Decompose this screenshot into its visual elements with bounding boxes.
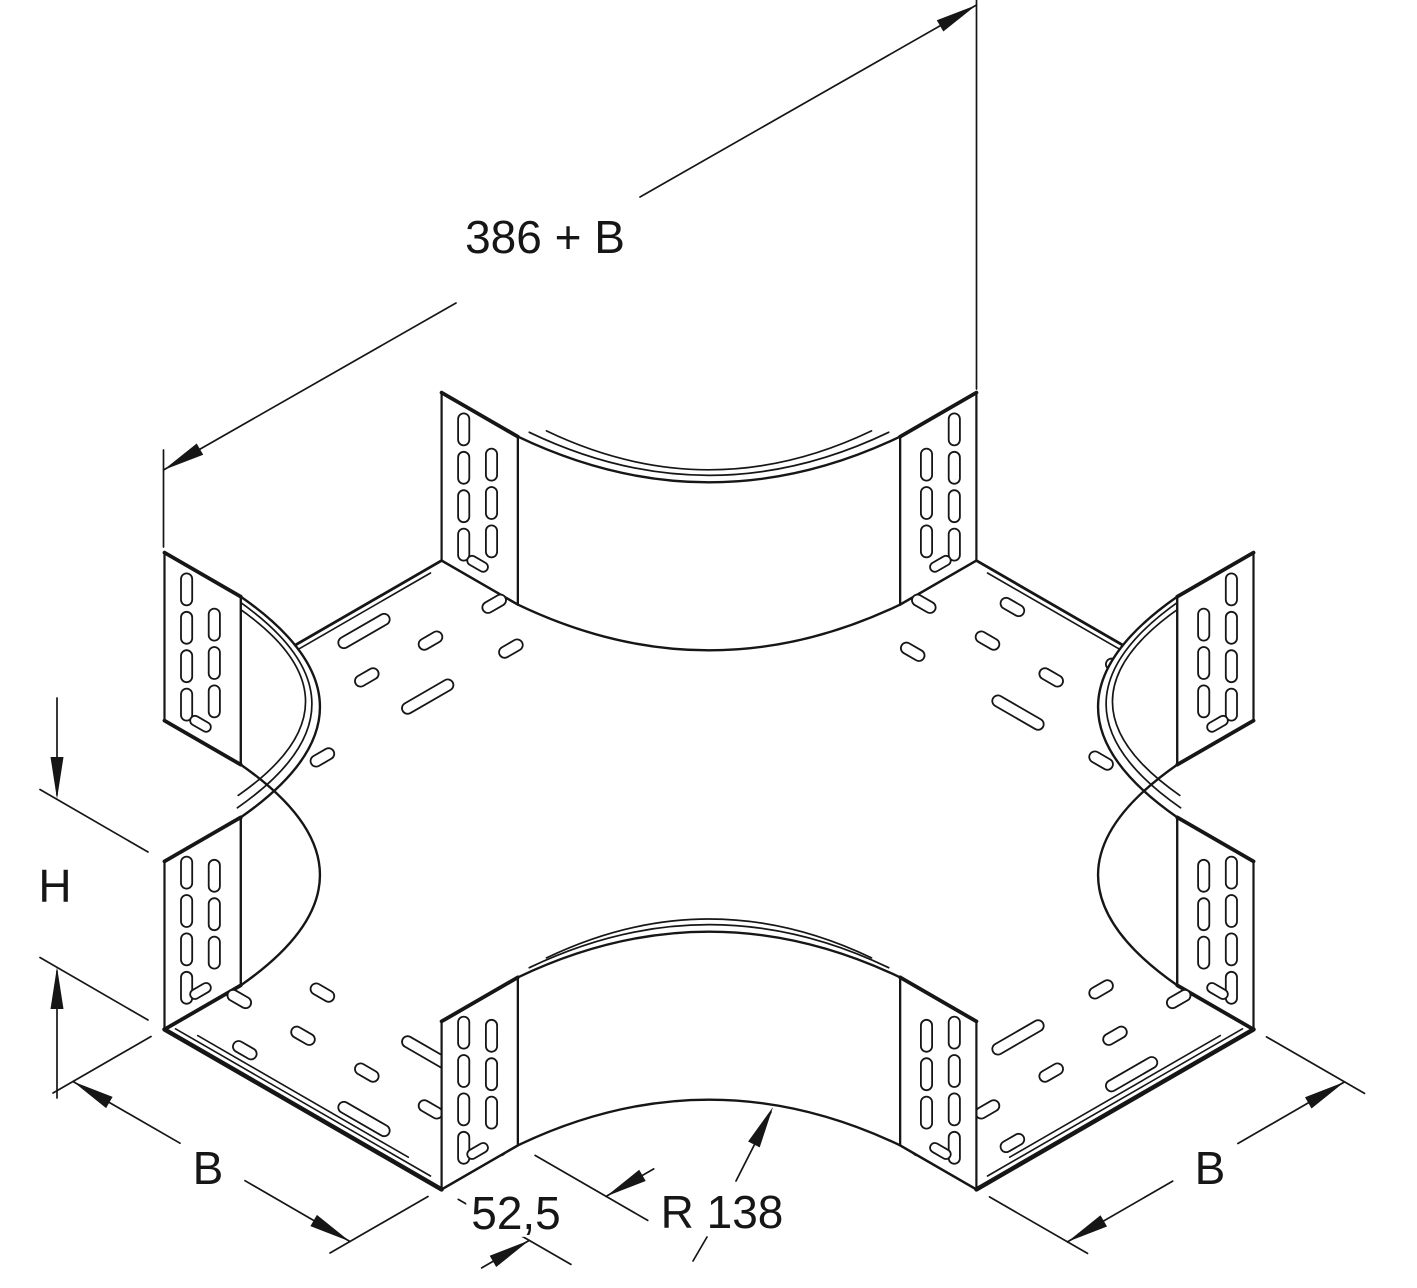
dimension-label-tangent: 52,5 [466,1189,566,1237]
dimension-label-width-right: B [1190,1144,1231,1192]
technical-drawing [0,0,1417,1288]
dimension-label-length: 386 + B [460,213,630,261]
dimension-label-width-left: B [188,1144,229,1192]
diagram-page: 386 + B H B B 52,5 R 138 [0,0,1417,1288]
dimension-label-radius: R 138 [656,1188,789,1236]
dimension-label-height: H [33,862,76,910]
